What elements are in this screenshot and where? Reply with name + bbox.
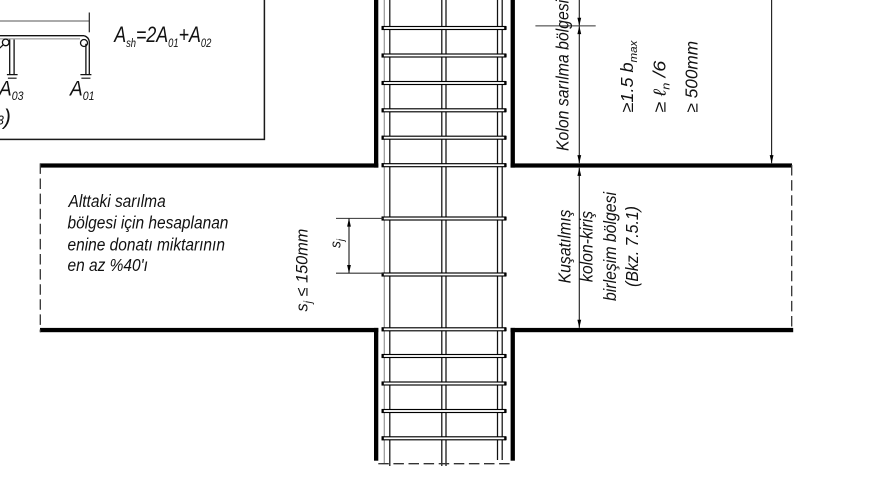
svg-text:Kolon sarılma bölgesi: Kolon sarılma bölgesi: [553, 0, 573, 151]
svg-text:sj ≤ 150mm: sj ≤ 150mm: [294, 229, 315, 312]
svg-text:bölgesi için hesaplanan: bölgesi için hesaplanan: [68, 214, 229, 233]
svg-text:(Bkz. 7.5.1): (Bkz. 7.5.1): [622, 206, 642, 287]
svg-text:en az %40'ı: en az %40'ı: [68, 256, 148, 275]
svg-text:≥ 500mm: ≥ 500mm: [682, 41, 702, 113]
svg-text:kolon-kiriş: kolon-kiriş: [577, 211, 597, 282]
svg-text:birleşim bölgesi: birleşim bölgesi: [600, 191, 620, 301]
svg-text:Alttaki sarılma: Alttaki sarılma: [68, 192, 166, 211]
svg-text:Kuşatılmış: Kuşatılmış: [555, 210, 575, 284]
svg-text:enine donatı miktarının: enine donatı miktarının: [68, 236, 225, 255]
